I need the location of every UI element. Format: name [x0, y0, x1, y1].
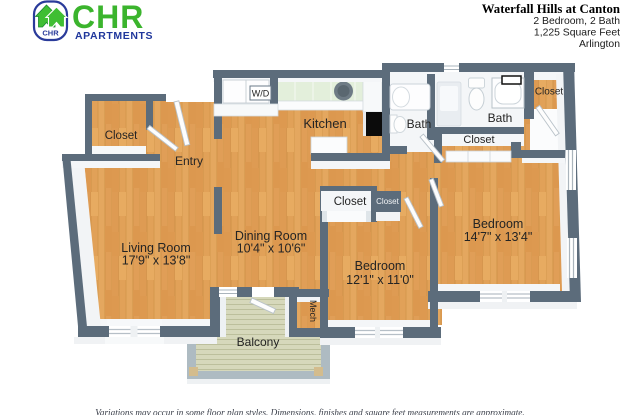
- svg-text:Variations may occur in some f: Variations may occur in some floor plan …: [95, 408, 524, 415]
- svg-text:APARTMENTS: APARTMENTS: [75, 30, 153, 42]
- svg-text:Closet: Closet: [535, 87, 564, 98]
- svg-text:Bath: Bath: [488, 111, 513, 125]
- svg-text:10'4" x 10'6": 10'4" x 10'6": [237, 242, 306, 256]
- svg-text:Closet: Closet: [376, 197, 399, 206]
- svg-text:Arlington: Arlington: [579, 39, 620, 50]
- svg-text:14'7" x 13'4": 14'7" x 13'4": [464, 230, 533, 244]
- svg-text:2 Bedroom, 2 Bath: 2 Bedroom, 2 Bath: [533, 16, 620, 27]
- svg-text:Entry: Entry: [175, 154, 203, 168]
- svg-text:Closet: Closet: [105, 130, 138, 142]
- svg-text:1,225 Square Feet: 1,225 Square Feet: [534, 28, 620, 39]
- svg-text:Kitchen: Kitchen: [303, 116, 346, 131]
- svg-text:Balcony: Balcony: [237, 335, 280, 349]
- svg-text:W/D: W/D: [252, 89, 270, 99]
- svg-text:12'1" x 11'0": 12'1" x 11'0": [346, 273, 414, 287]
- svg-text:Bedroom: Bedroom: [473, 217, 524, 231]
- svg-text:Waterfall Hills at Canton: Waterfall Hills at Canton: [482, 2, 620, 16]
- svg-text:Mech: Mech: [308, 300, 318, 322]
- svg-text:17'9" x 13'8": 17'9" x 13'8": [122, 254, 191, 268]
- svg-text:Closet: Closet: [463, 134, 494, 146]
- svg-text:Bath: Bath: [407, 117, 432, 131]
- svg-text:Closet: Closet: [334, 196, 367, 208]
- svg-text:Bedroom: Bedroom: [355, 259, 406, 273]
- svg-text:CHR: CHR: [42, 29, 59, 38]
